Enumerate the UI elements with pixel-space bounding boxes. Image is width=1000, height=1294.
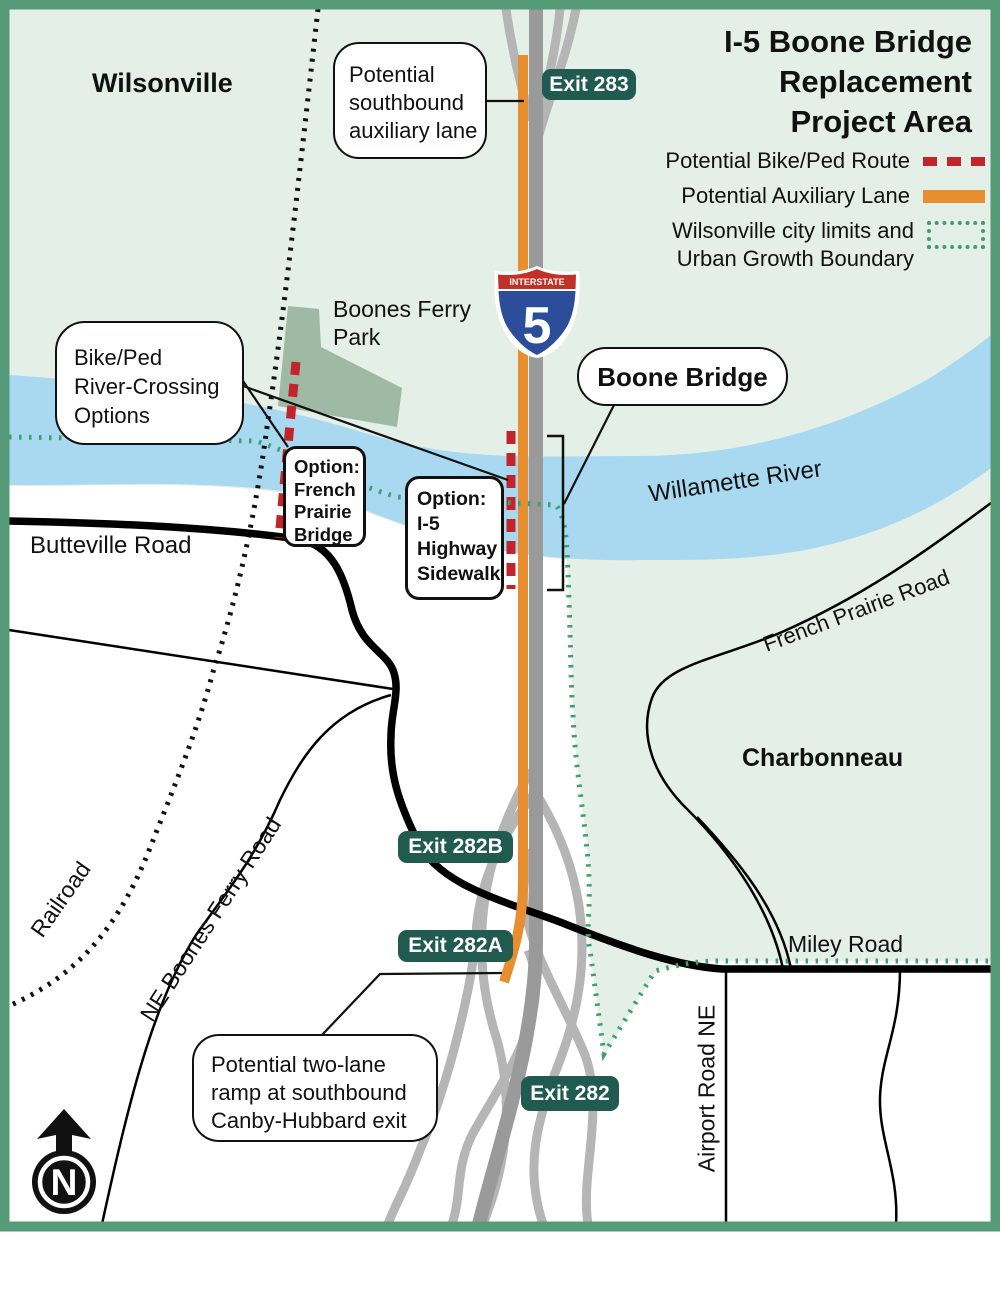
- label-miley-road: Miley Road: [788, 931, 903, 958]
- callout-option-i5-sidewalk: Option: I-5 Highway Sidewalk: [405, 476, 504, 600]
- label-airport-road-ne: Airport Road NE: [694, 1004, 721, 1174]
- label-boones-ferry-park: Boones Ferry Park: [333, 295, 483, 351]
- legend-item-bike-ped: Potential Bike/Ped Route: [565, 147, 985, 175]
- north-arrow-icon: N: [25, 1105, 103, 1217]
- exit-282a-badge: Exit 282A: [398, 930, 513, 962]
- red-dashed-swatch: [923, 157, 985, 166]
- title-line: Replacement: [724, 62, 972, 102]
- green-dotted-box-swatch: [927, 221, 985, 249]
- label-wilsonville: Wilsonville: [92, 68, 233, 99]
- title-line: I-5 Boone Bridge: [724, 22, 972, 62]
- callout-boone-bridge: Boone Bridge: [577, 347, 788, 406]
- legend-item-city-limits: Wilsonville city limits and Urban Growth…: [565, 217, 985, 273]
- map-legend: Potential Bike/Ped Route Potential Auxil…: [565, 147, 985, 280]
- legend-label: Potential Bike/Ped Route: [665, 147, 910, 175]
- shield-route-number: 5: [523, 297, 552, 355]
- orange-solid-swatch: [923, 190, 985, 203]
- exit-282-badge: Exit 282: [521, 1076, 619, 1111]
- callout-southbound-aux-lane: Potential southbound auxiliary lane: [333, 42, 487, 159]
- exit-283-badge: Exit 283: [542, 69, 636, 100]
- north-letter: N: [51, 1162, 78, 1203]
- callout-bike-ped-options: Bike/Ped River-Crossing Options: [55, 321, 244, 445]
- legend-item-aux-lane: Potential Auxiliary Lane: [565, 182, 985, 210]
- label-charbonneau: Charbonneau: [742, 744, 903, 773]
- label-butteville-road: Butteville Road: [30, 532, 191, 560]
- legend-label: Potential Auxiliary Lane: [681, 182, 910, 210]
- callout-option-french-prairie-bridge: Option: French Prairie Bridge: [283, 446, 366, 547]
- interstate-5-shield-icon: INTERSTATE 5: [492, 264, 582, 360]
- callout-two-lane-ramp: Potential two-lane ramp at southbound Ca…: [192, 1034, 438, 1142]
- legend-label: Wilsonville city limits and Urban Growth…: [672, 217, 914, 273]
- shield-interstate-text: INTERSTATE: [509, 277, 564, 287]
- title-line: Project Area: [724, 102, 972, 142]
- exit-282b-badge: Exit 282B: [398, 831, 513, 863]
- map-canvas: I-5 Boone Bridge Replacement Project Are…: [0, 0, 1000, 1294]
- page-title: I-5 Boone Bridge Replacement Project Are…: [724, 22, 972, 142]
